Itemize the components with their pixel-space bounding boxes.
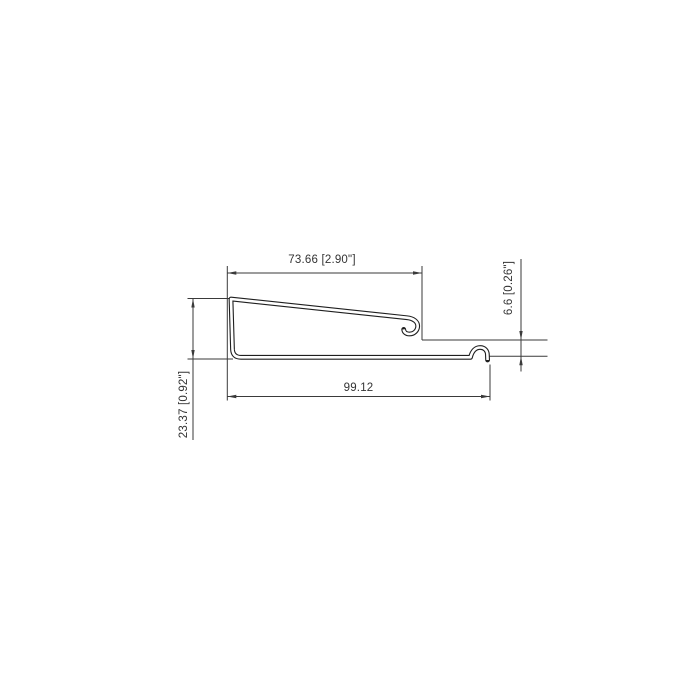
arrowhead-up [191,299,194,308]
profile-outline [231,299,488,360]
dim-top-width: 73.66 [2.90"] [227,254,422,401]
arrowhead-right [413,271,422,274]
dim-label-left-height: 23.37 [0.92"] [178,371,190,438]
profile-dimension-drawing: 73.66 [2.90"] 23.37 [0.92"] 6.6 [0.26"] [0,0,700,700]
arrowhead-left [227,271,236,274]
dim-label-top-width: 73.66 [2.90"] [288,254,355,266]
arrowhead-down [519,331,522,340]
dim-label-right-height: 6.6 [0.26"] [503,261,515,315]
arrowhead-up [519,356,522,365]
arrowhead-down [191,350,194,359]
arrowhead-right [481,395,490,398]
profile-sheet-inner [231,299,488,360]
dim-bottom-width: 99.12 [227,365,490,401]
dim-label-bottom-width: 99.12 [344,382,374,394]
profile-sheet-outer [231,299,488,360]
drawing-canvas: 73.66 [2.90"] 23.37 [0.92"] 6.6 [0.26"] [0,0,700,700]
dim-right-height: 6.6 [0.26"] [422,259,548,372]
dim-left-height: 23.37 [0.92"] [178,299,233,441]
arrowhead-left [227,395,236,398]
